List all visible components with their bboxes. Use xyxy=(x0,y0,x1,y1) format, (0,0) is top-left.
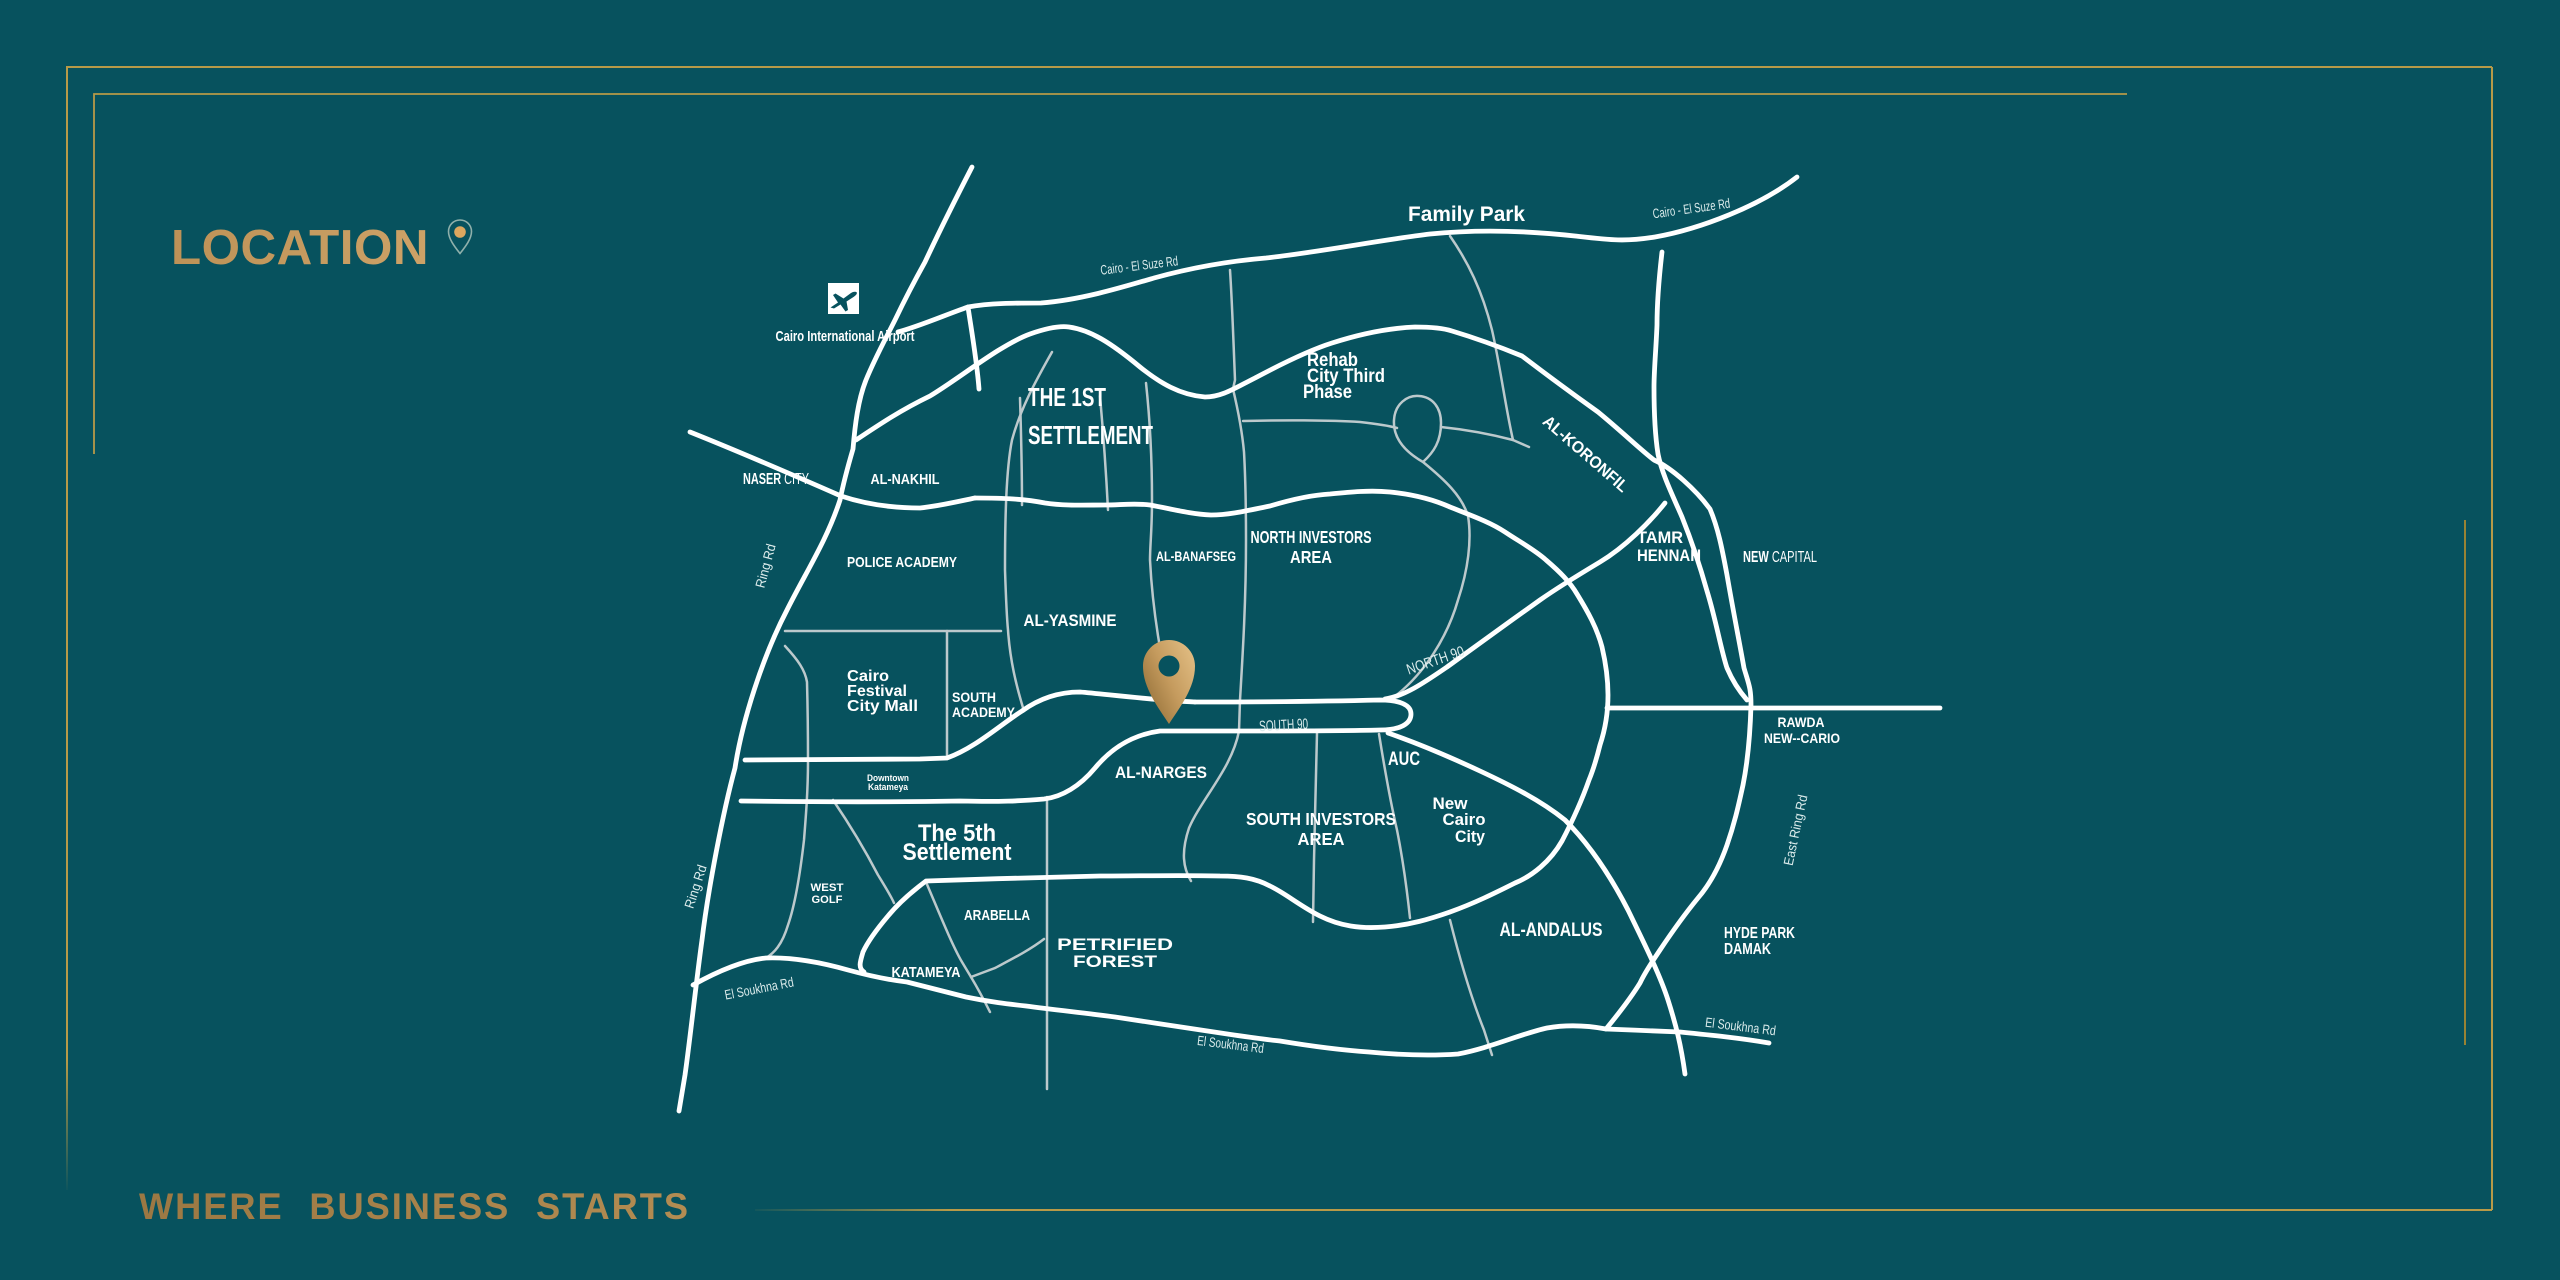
svg-text:Phase: Phase xyxy=(1303,382,1352,403)
svg-text:SOUTH INVESTORS: SOUTH INVESTORS xyxy=(1246,809,1396,829)
svg-text:ARABELLA: ARABELLA xyxy=(964,908,1030,924)
svg-text:ACADEMY: ACADEMY xyxy=(952,704,1016,720)
svg-text:KATAMEYA: KATAMEYA xyxy=(892,965,961,981)
svg-text:FOREST: FOREST xyxy=(1073,952,1158,971)
svg-text:AREA: AREA xyxy=(1298,829,1345,849)
svg-text:WHERE BUSINESS STARTS: WHERE BUSINESS STARTS xyxy=(139,1186,690,1227)
svg-text:NORTH INVESTORS: NORTH INVESTORS xyxy=(1251,527,1372,547)
svg-text:THE 1ST: THE 1ST xyxy=(1028,382,1106,412)
svg-text:HENNAH: HENNAH xyxy=(1637,546,1701,565)
svg-text:LOCATION: LOCATION xyxy=(171,221,429,275)
svg-text:DAMAK: DAMAK xyxy=(1724,941,1771,958)
svg-text:SOUTH 90: SOUTH 90 xyxy=(1259,716,1309,736)
svg-text:AL-NARGES: AL-NARGES xyxy=(1115,763,1207,782)
svg-text:SETTLEMENT: SETTLEMENT xyxy=(1028,420,1153,450)
svg-text:City: City xyxy=(1455,827,1486,846)
svg-text:Cairo International Airport: Cairo International Airport xyxy=(776,328,915,345)
svg-text:Settlement: Settlement xyxy=(903,839,1012,866)
svg-text:AREA: AREA xyxy=(1290,547,1332,567)
svg-text:AL-ANDALUS: AL-ANDALUS xyxy=(1500,920,1603,941)
svg-text:GOLF: GOLF xyxy=(812,894,843,906)
svg-text:RAWDA: RAWDA xyxy=(1778,714,1825,730)
svg-text:HYDE PARK: HYDE PARK xyxy=(1724,925,1795,942)
svg-text:NEW CAPITAL: NEW CAPITAL xyxy=(1743,549,1817,566)
svg-text:City Mall: City Mall xyxy=(847,698,918,715)
svg-text:NEW--CARIO: NEW--CARIO xyxy=(1764,730,1840,746)
svg-text:Katameya: Katameya xyxy=(868,782,909,792)
svg-text:SOUTH: SOUTH xyxy=(952,689,996,705)
svg-text:POLICE ACADEMY: POLICE ACADEMY xyxy=(847,554,957,571)
svg-text:AL-NAKHIL: AL-NAKHIL xyxy=(871,471,940,488)
svg-text:AL-BANAFSEG: AL-BANAFSEG xyxy=(1156,548,1236,564)
svg-text:TAMR: TAMR xyxy=(1637,528,1683,547)
svg-text:WEST: WEST xyxy=(811,882,844,894)
svg-text:Family Park: Family Park xyxy=(1408,203,1525,226)
svg-text:AL-YASMINE: AL-YASMINE xyxy=(1024,612,1117,630)
svg-text:NASER CITY: NASER CITY xyxy=(743,471,809,488)
svg-text:AUC: AUC xyxy=(1388,749,1420,770)
